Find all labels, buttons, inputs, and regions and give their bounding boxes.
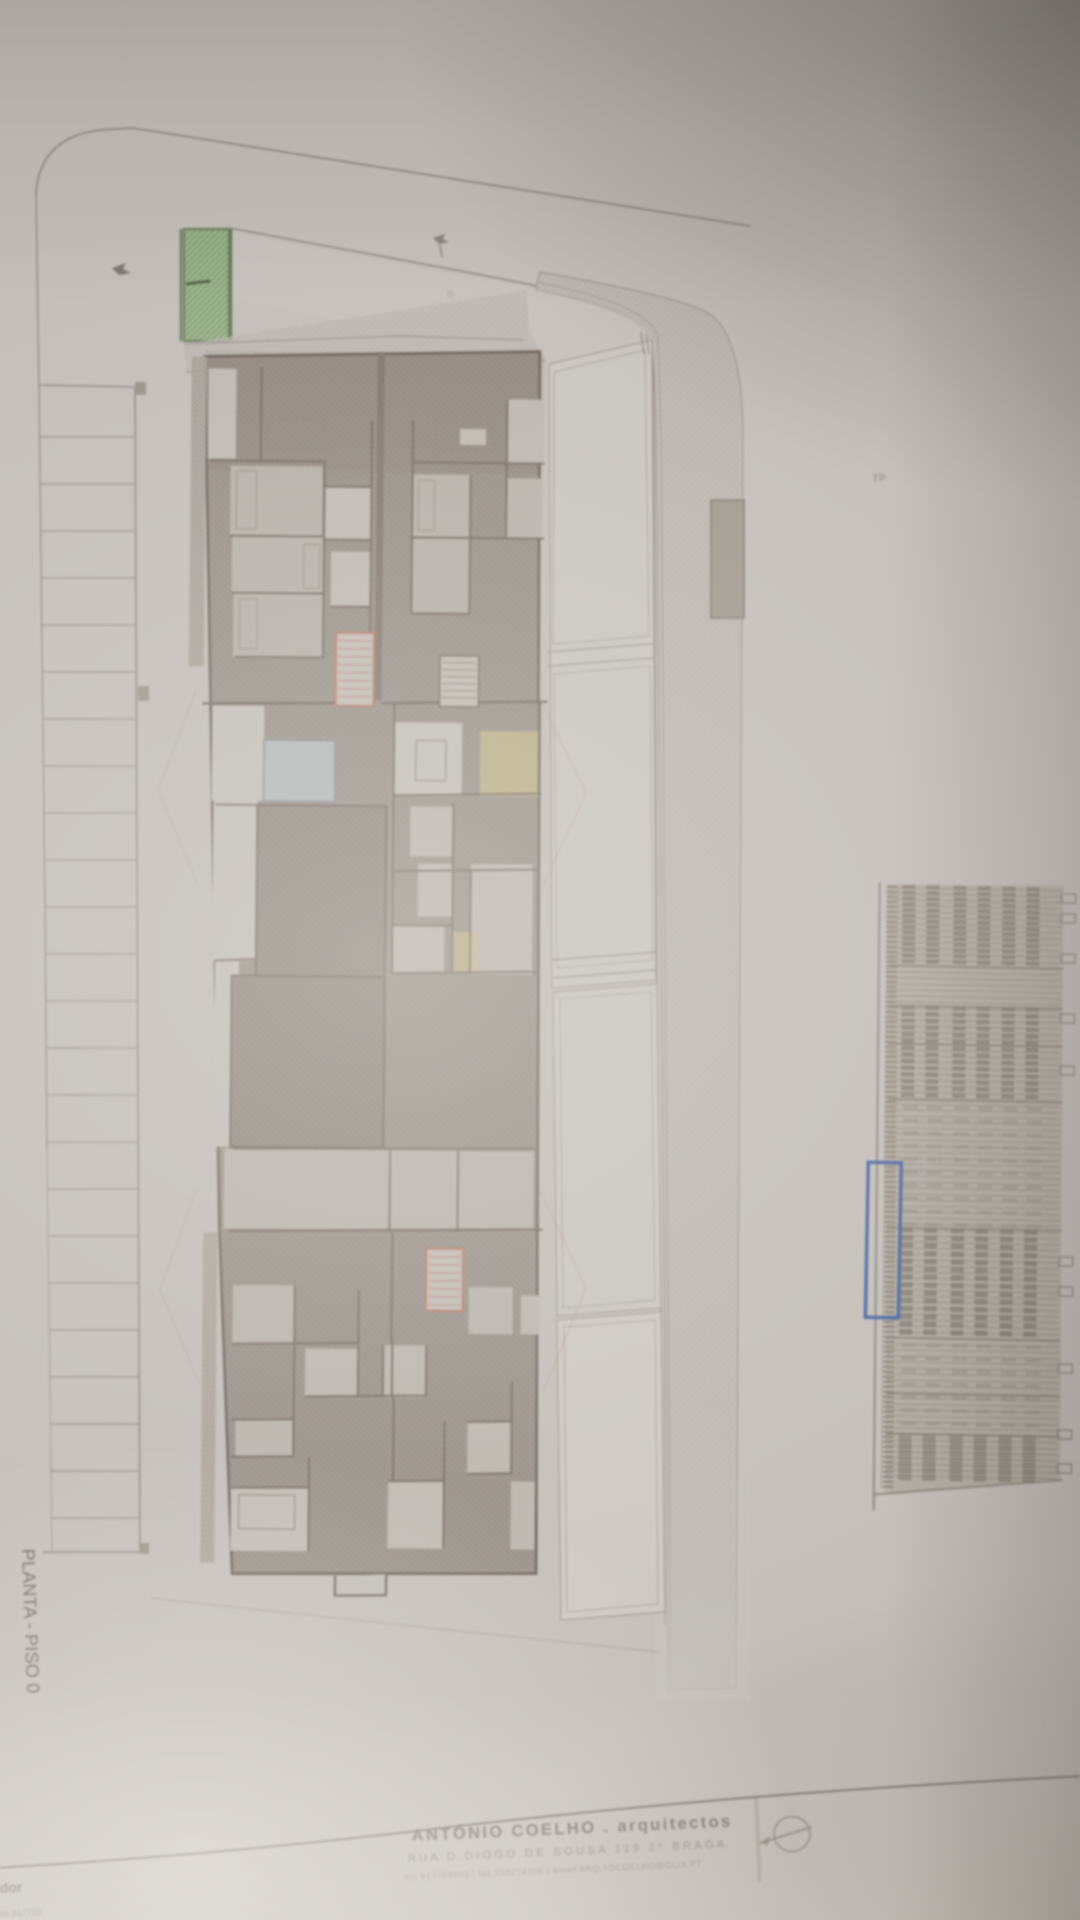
svg-text:PLANTA - PISO 0: PLANTA - PISO 0: [18, 1548, 43, 1693]
svg-text:dor: dor: [0, 1879, 23, 1896]
svg-text:im 917788: im 917788: [0, 1907, 42, 1919]
svg-text:TP: TP: [872, 473, 886, 485]
